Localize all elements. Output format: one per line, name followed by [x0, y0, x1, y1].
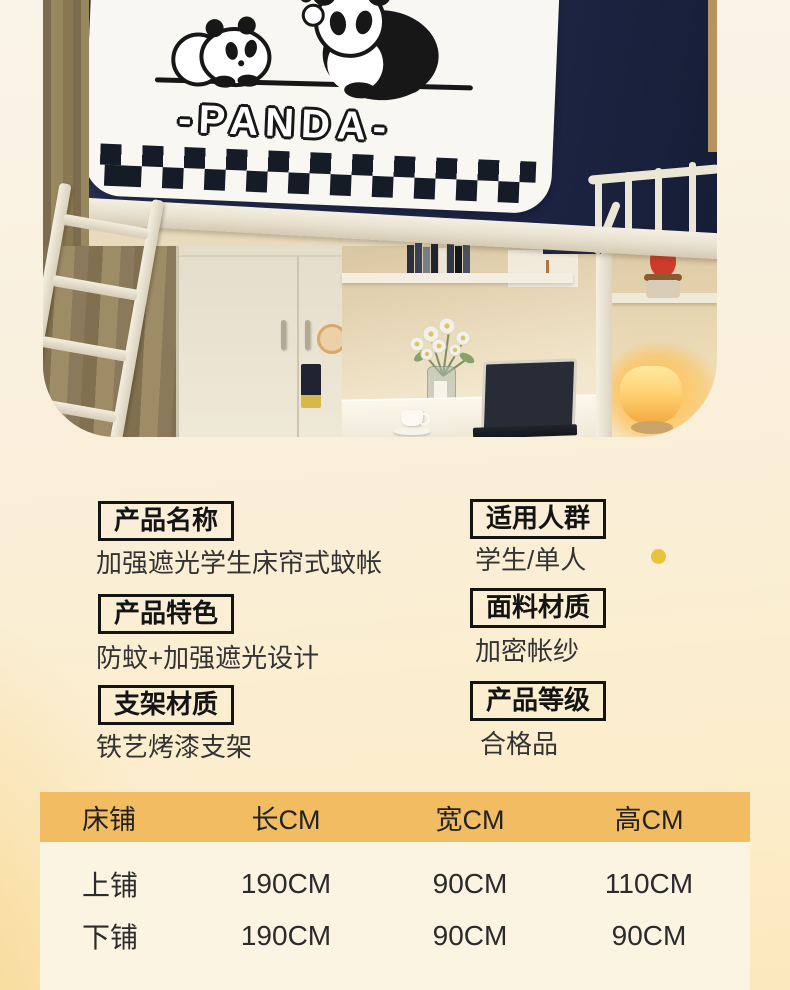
table-cell: 90CM — [548, 920, 750, 952]
bed-post-edge — [708, 0, 717, 152]
table-row-upper-bunk: 上铺 190CM 90CM 110CM — [40, 858, 750, 910]
vase-label — [434, 381, 447, 399]
wardrobe-handle — [305, 320, 310, 350]
ladder-rung — [63, 214, 150, 240]
books — [407, 243, 473, 273]
spec-item-target-users: 适用人群 — [470, 499, 606, 539]
size-table: 床铺 长CM 宽CM 高CM 上铺 190CM 90CM 110CM 下铺 19… — [40, 792, 750, 990]
header-cell: 宽CM — [392, 798, 548, 837]
spec-value: 学生/单人 — [475, 540, 586, 577]
spec-item-product-name: 产品名称 — [98, 501, 234, 541]
spec-label: 适用人群 — [470, 499, 606, 539]
spec-item-product-grade: 产品等级 — [470, 681, 606, 721]
lamp-base — [631, 421, 673, 434]
header-cell: 高CM — [548, 798, 750, 837]
table-cell: 110CM — [548, 868, 750, 900]
wardrobe-handle — [281, 320, 286, 350]
frame-post — [596, 223, 612, 437]
table-cell: 190CM — [180, 868, 392, 900]
table-row-lower-bunk: 下铺 190CM 90CM 90CM — [40, 910, 750, 962]
ladder-rung — [43, 336, 128, 362]
header-cell: 长CM — [180, 798, 392, 837]
ladder-rung — [43, 397, 117, 423]
spec-item-fabric-material: 面料材质 — [470, 588, 606, 628]
size-table-body: 上铺 190CM 90CM 110CM 下铺 190CM 90CM 90CM — [40, 842, 750, 962]
table-cell: 90CM — [392, 920, 548, 952]
poster-sticker — [301, 364, 321, 408]
saucer — [393, 427, 431, 435]
spec-label: 产品名称 — [98, 501, 234, 541]
spec-label: 面料材质 — [470, 588, 606, 628]
spec-value: 防蚊+加强遮光设计 — [96, 638, 319, 675]
vase-stand — [646, 280, 680, 298]
panda-curtain-panel: -PANDA- — [83, 0, 561, 214]
ladder-rung — [52, 275, 139, 301]
spec-label: 产品等级 — [470, 681, 606, 721]
panda-illustration — [142, 0, 487, 109]
railing-bar — [655, 168, 662, 236]
spec-label: 产品特色 — [98, 594, 234, 634]
laptop — [481, 358, 577, 433]
spec-item-product-feature: 产品特色 — [98, 594, 234, 634]
spec-value: 加强遮光学生床帘式蚊帐 — [96, 543, 382, 580]
size-table-header: 床铺 长CM 宽CM 高CM — [40, 792, 750, 842]
spec-value: 加密帐纱 — [475, 631, 579, 668]
wardrobe-seam — [297, 256, 299, 437]
coffee-cup — [401, 410, 423, 426]
page: -PANDA- 产品名称 加强遮光学生床帘式蚊帐 产品特色 防蚊+加强遮光设计 — [0, 0, 790, 990]
spec-value: 铁艺烤漆支架 — [96, 727, 252, 764]
spec-item-bracket-material: 支架材质 — [98, 685, 234, 725]
wardrobe-seam — [179, 255, 345, 257]
table-cell: 90CM — [392, 868, 548, 900]
spec-value: 合格品 — [480, 724, 558, 761]
bookshelf-board — [342, 273, 573, 283]
spec-label: 支架材质 — [98, 685, 234, 725]
wardrobe — [176, 246, 345, 437]
highlight-dot — [651, 549, 666, 564]
table-cell: 190CM — [180, 920, 392, 952]
header-cell: 床铺 — [40, 798, 180, 837]
table-cell: 上铺 — [40, 864, 180, 904]
table-cell: 下铺 — [40, 916, 180, 956]
product-photo: -PANDA- — [43, 0, 717, 437]
table-lamp — [620, 366, 682, 424]
railing-bar — [689, 162, 696, 234]
